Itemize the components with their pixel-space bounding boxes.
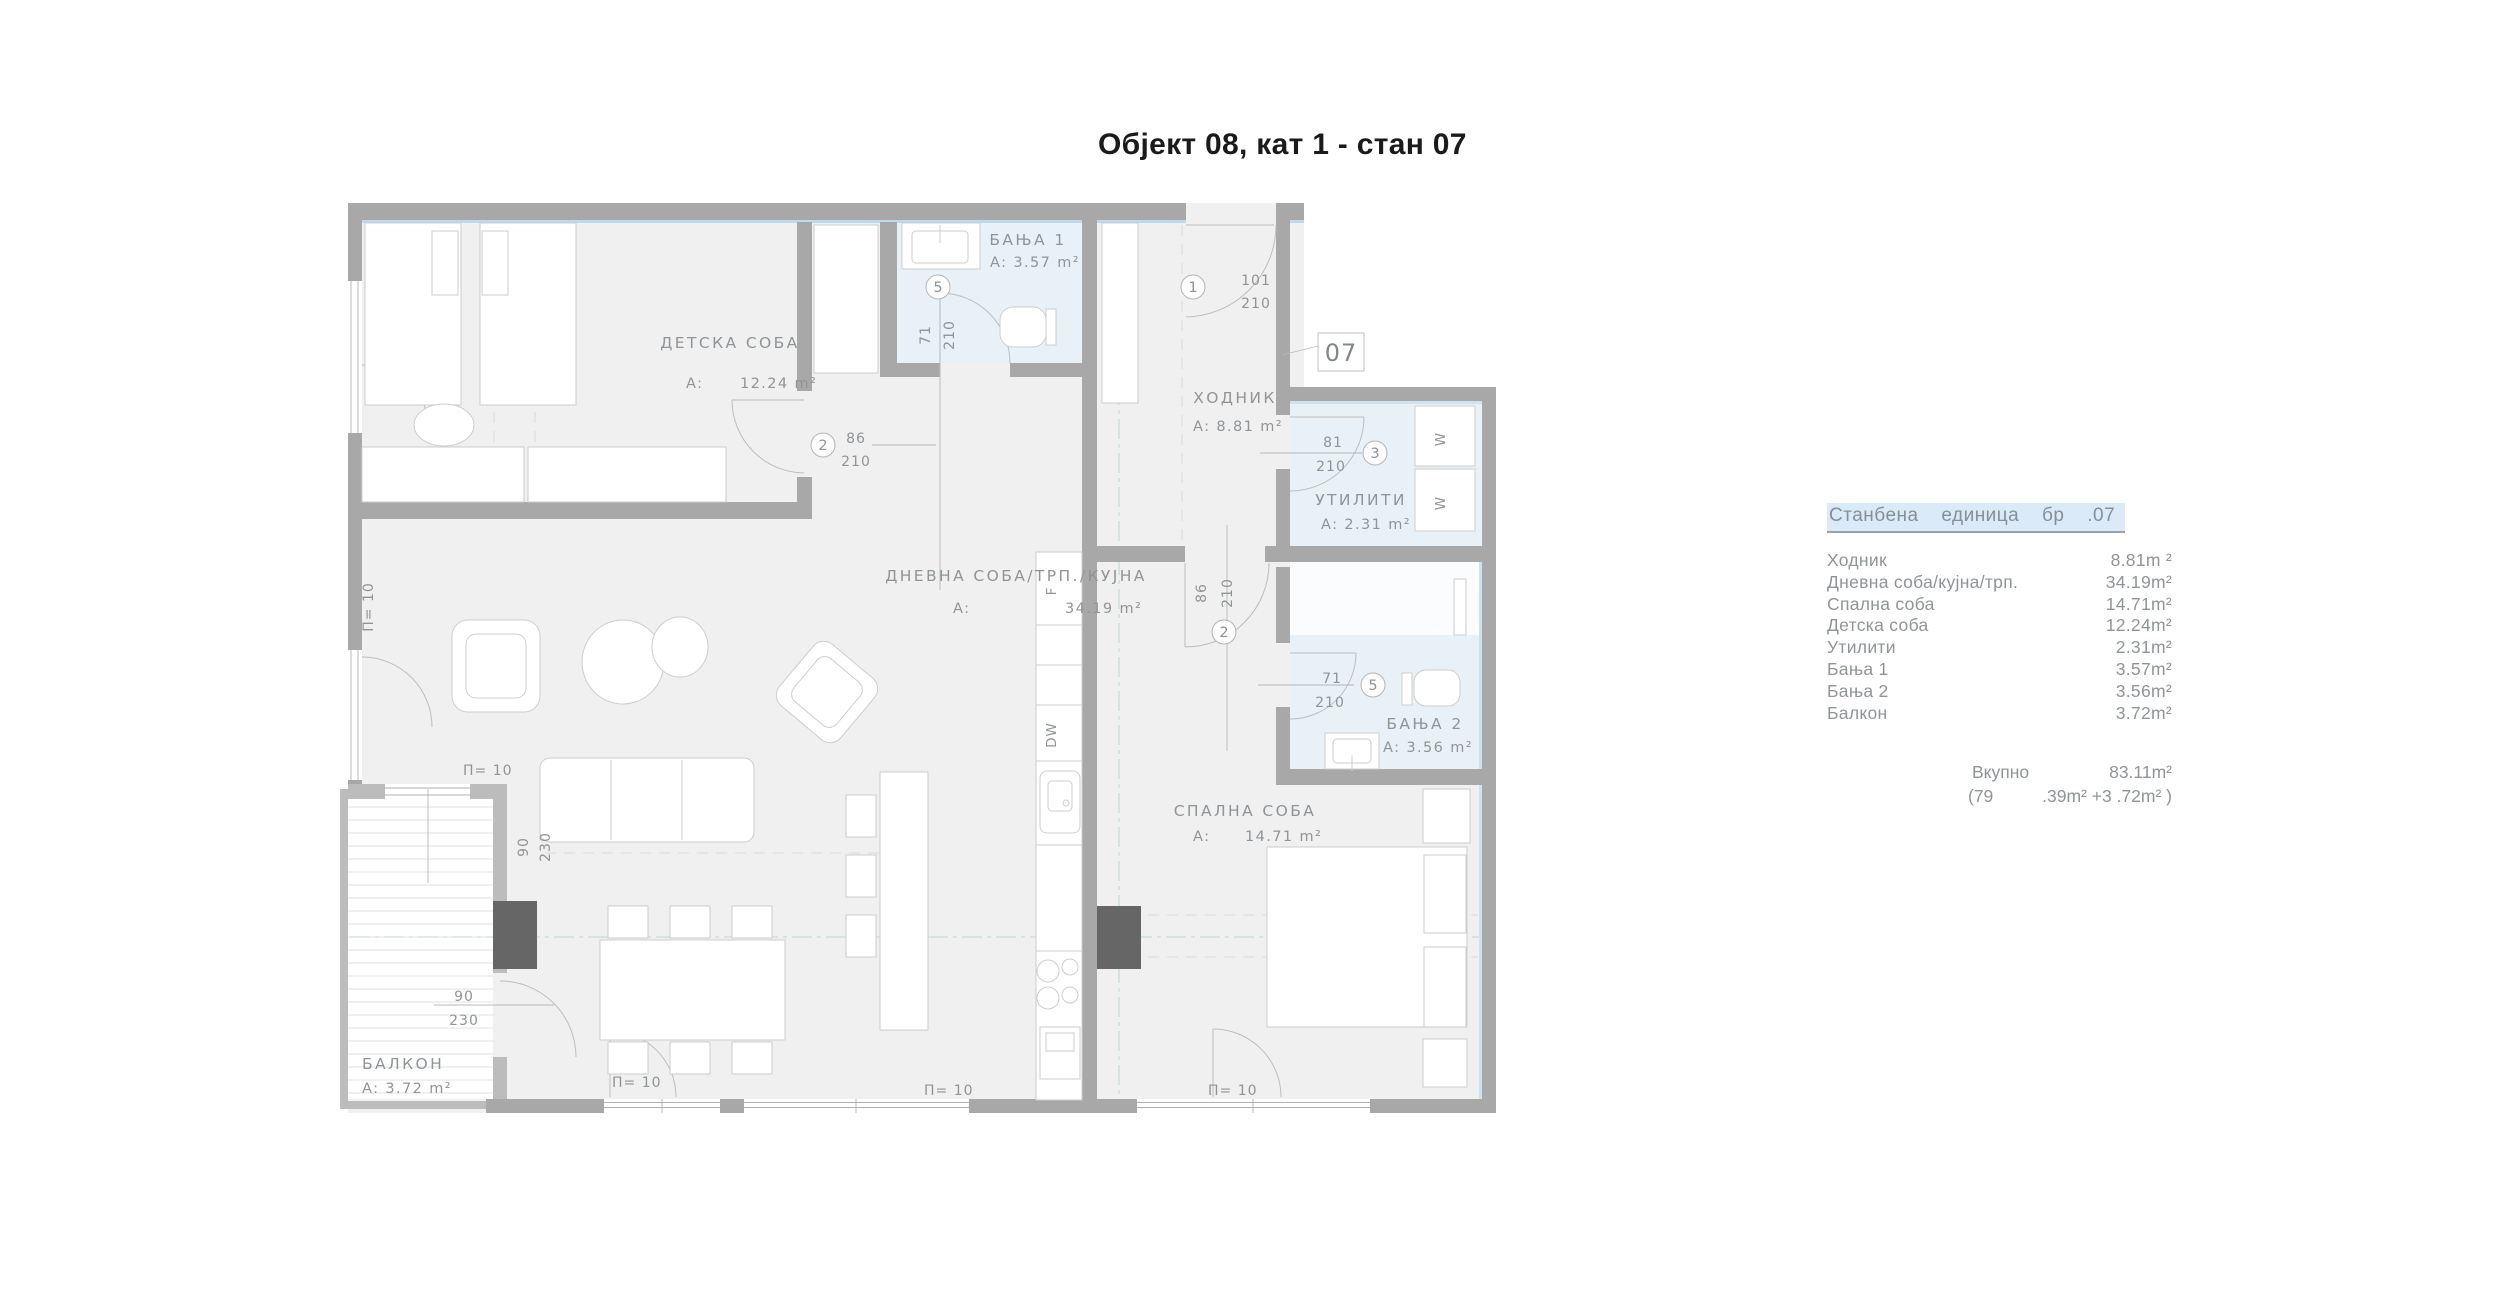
unit-number-box: 07 xyxy=(1318,333,1364,371)
wall-spine xyxy=(1082,220,1097,1099)
legend-room-area: 2.31m² xyxy=(2116,637,2172,659)
dim-height: 230 xyxy=(538,832,554,862)
legend-total-value: 83.11m² xyxy=(2109,762,2172,783)
dining-chair xyxy=(608,906,648,938)
dim-height: 210 xyxy=(1220,578,1236,608)
legend-room-name: Спална соба xyxy=(1827,594,1935,616)
wall-bottom xyxy=(486,1099,604,1113)
dim-width: 71 xyxy=(918,325,934,345)
door-number: 5 xyxy=(933,280,942,296)
legend-panel: Станбена единица бр .07 Ходник 8.81m ² Д… xyxy=(1827,503,2172,807)
wall-kidsroom-right xyxy=(797,222,812,391)
parapet-label: П= 10 xyxy=(612,1075,662,1091)
room-area: 34.19 m² xyxy=(1065,601,1142,617)
bath2-dry-zone xyxy=(1290,562,1482,635)
room-area: A: 3.56 m² xyxy=(1383,740,1473,756)
wall-utility-top xyxy=(1290,387,1496,401)
window-bottom-living-2 xyxy=(744,1099,969,1113)
window-left-living xyxy=(348,650,362,780)
wall-bath1-left xyxy=(880,222,897,363)
legend-row: Бања 2 3.56m² xyxy=(1827,681,2172,703)
washer-label: W xyxy=(1433,432,1449,446)
room-name-living: ДНЕВНА СОБА/ТРП./КУЈНА xyxy=(885,567,1147,585)
wall-bath2-bottom xyxy=(1276,769,1482,785)
legend-room-name: Ходник xyxy=(1827,550,1887,572)
room-area: 14.71 m² xyxy=(1245,829,1322,845)
toilet-bath2 xyxy=(1414,670,1460,706)
room-name-balcony: БАЛКОН xyxy=(362,1055,444,1073)
floor-plan-svg: 1 2 2 3 5 5 101 210 86 210 86 210 81 210… xyxy=(340,195,1500,1115)
room-area: A: 3.57 m² xyxy=(990,255,1080,271)
wall-bedroom-top xyxy=(1097,546,1185,562)
hall-closet xyxy=(1102,223,1138,403)
legend-room-name: Балкон xyxy=(1827,703,1887,725)
island-counter xyxy=(880,772,928,1030)
closet-niche xyxy=(814,225,878,373)
dim-height: 230 xyxy=(449,1013,479,1029)
dim-height: 210 xyxy=(1316,459,1346,475)
desk xyxy=(362,447,524,502)
stool xyxy=(846,915,876,957)
dining-table xyxy=(600,940,785,1040)
wall-right xyxy=(1482,387,1496,1113)
page-title: Објект 08, кат 1 - стан 07 xyxy=(1098,128,1467,162)
dim-width: 81 xyxy=(1323,435,1343,451)
legend-row: Утилити 2.31m² xyxy=(1827,637,2172,659)
fridge-label: F xyxy=(1044,587,1060,596)
room-area-prefix: A: xyxy=(1193,829,1210,845)
room-name-kids: ДЕТСКА СОБА xyxy=(660,334,799,352)
legend-room-area: 34.19m² xyxy=(2106,572,2172,594)
legend-room-name: Дневна соба/кујна/трп. xyxy=(1827,572,2018,594)
wall-bath2-left xyxy=(1276,567,1290,643)
legend-row: Дневна соба/кујна/трп. 34.19m² xyxy=(1827,572,2172,594)
door-number: 3 xyxy=(1370,446,1379,462)
dining-chair xyxy=(670,906,710,938)
room-area: 12.24 m² xyxy=(740,376,817,392)
page: Објект 08, кат 1 - стан 07 xyxy=(0,0,2500,1313)
room-name-bath2: БАЊА 2 xyxy=(1386,715,1463,733)
parapet-label: П= 10 xyxy=(361,582,377,632)
dim-height: 210 xyxy=(1241,296,1271,312)
sofa xyxy=(540,758,754,842)
window-balcony-top xyxy=(385,784,470,799)
legend-room-name: Бања 2 xyxy=(1827,681,1889,703)
balcony-hatch xyxy=(348,799,493,1099)
room-area: A: 8.81 m² xyxy=(1193,419,1283,435)
legend-rows: Ходник 8.81m ² Дневна соба/кујна/трп. 34… xyxy=(1827,550,2172,724)
kitchen xyxy=(1036,552,1082,1100)
dim-width: 71 xyxy=(1322,671,1342,687)
door-number: 5 xyxy=(1368,678,1377,694)
room-area: A: 3.72 m² xyxy=(362,1081,452,1097)
utility-fixtures xyxy=(1415,406,1475,531)
stool xyxy=(846,855,876,897)
door-number: 2 xyxy=(818,438,827,454)
legend-room-area: 3.72m² xyxy=(2116,703,2172,725)
dim-height: 210 xyxy=(1315,695,1345,711)
dining-chair xyxy=(732,906,772,938)
parapet-label: П= 10 xyxy=(463,763,513,779)
legend-total-label: Вкупно xyxy=(1972,762,2029,783)
unit-number: 07 xyxy=(1325,339,1358,367)
beanbag-chair xyxy=(414,404,474,446)
door-number: 1 xyxy=(1188,280,1197,296)
window-bottom-living-1 xyxy=(604,1099,720,1113)
window-left-kidsroom xyxy=(348,281,362,433)
legend-row: Балкон 3.72m² xyxy=(1827,703,2172,725)
legend-room-area: 12.24m² xyxy=(2106,615,2172,637)
legend-breakdown-rest: .39m² +3 .72m² ) xyxy=(2042,786,2172,807)
dining-chair xyxy=(670,1042,710,1074)
legend-breakdown-open: (79 xyxy=(1968,786,1993,807)
room-name-bedroom: СПАЛНА СОБА xyxy=(1174,802,1317,820)
toilet-bath1 xyxy=(1000,307,1046,347)
wall-bath1-bottom xyxy=(880,363,940,377)
pillow xyxy=(1424,855,1466,933)
parapet-label: П= 10 xyxy=(1208,1083,1258,1099)
toilet-tank-bath1 xyxy=(1046,309,1056,345)
legend-row: Детска соба 12.24m² xyxy=(1827,615,2172,637)
bedroom-closet xyxy=(1423,789,1470,843)
legend-room-area: 3.56m² xyxy=(2116,681,2172,703)
wall-top xyxy=(348,203,1186,220)
dining-chair xyxy=(732,1042,772,1074)
legend-room-area: 14.71m² xyxy=(2106,594,2172,616)
washer-label: W xyxy=(1433,496,1449,510)
floor-plan: 1 2 2 3 5 5 101 210 86 210 86 210 81 210… xyxy=(340,195,1500,1115)
radiator xyxy=(1454,579,1466,635)
window-bottom-bedroom xyxy=(1137,1099,1370,1113)
room-name-utility: УТИЛИТИ xyxy=(1315,491,1407,509)
legend-total: Вкупно 83.11m² xyxy=(1827,762,2172,783)
wall-utility-left xyxy=(1276,401,1290,415)
dim-height: 210 xyxy=(942,320,958,350)
wall-left xyxy=(348,203,362,281)
legend-room-area: 8.81m ² xyxy=(2111,550,2172,572)
legend-row: Ходник 8.81m ² xyxy=(1827,550,2172,572)
dim-width: 86 xyxy=(1194,583,1210,603)
legend-room-name: Утилити xyxy=(1827,637,1896,659)
room-area-prefix: A: xyxy=(953,601,970,617)
dim-width: 101 xyxy=(1241,273,1271,289)
legend-header: Станбена единица бр .07 xyxy=(1827,503,2125,533)
wall-hall-right xyxy=(1276,203,1290,401)
dim-height: 210 xyxy=(841,454,871,470)
legend-row: Спална соба 14.71m² xyxy=(1827,594,2172,616)
column-2 xyxy=(1097,906,1141,969)
legend-room-name: Детска соба xyxy=(1827,615,1929,637)
dining-chair xyxy=(608,1042,648,1074)
room-area: A: 2.31 m² xyxy=(1321,517,1411,533)
column-1 xyxy=(493,901,537,969)
room-name-bath1: БАЊА 1 xyxy=(989,231,1066,249)
coffee-table-2 xyxy=(652,617,708,677)
legend-room-area: 3.57m² xyxy=(2116,659,2172,681)
dishwasher-label: DW xyxy=(1044,722,1060,748)
dim-width: 86 xyxy=(846,431,866,447)
legend-breakdown: (79 .39m² +3 .72m² ) xyxy=(1827,786,2172,807)
parapet-label: П= 10 xyxy=(924,1083,974,1099)
room-name-hall: ХОДНИК xyxy=(1193,389,1277,407)
wall-kidsroom-bottom xyxy=(362,502,812,519)
coffee-table-1 xyxy=(582,620,664,704)
toilet-tank-bath2 xyxy=(1402,673,1412,705)
door-number: 2 xyxy=(1219,625,1228,641)
nightstand xyxy=(1423,1039,1467,1087)
dim-width: 90 xyxy=(516,837,532,857)
wardrobe xyxy=(528,447,726,502)
pillow xyxy=(1424,947,1466,1027)
legend-row: Бања 1 3.57m² xyxy=(1827,659,2172,681)
stool xyxy=(846,795,876,837)
room-area-prefix: A: xyxy=(686,376,703,392)
dim-width: 90 xyxy=(454,989,474,1005)
legend-room-name: Бања 1 xyxy=(1827,659,1889,681)
